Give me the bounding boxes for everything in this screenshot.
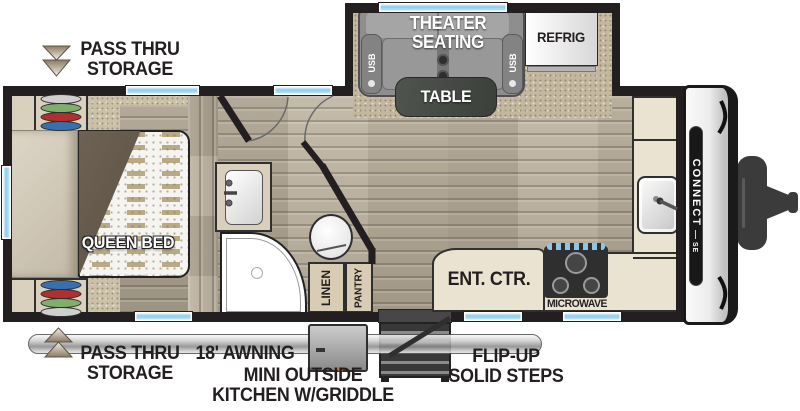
ent-ctr-label: ENT. CTR. xyxy=(448,270,531,290)
trailer-hitch xyxy=(737,156,798,250)
window-left-bedroom xyxy=(1,165,12,240)
usb-label-right: USB xyxy=(508,53,518,72)
wall-slide-left xyxy=(345,3,353,96)
window-bottom-kitchen xyxy=(562,311,622,322)
pantry-label: PANTRY xyxy=(354,268,365,308)
window-bottom-bedroom xyxy=(134,311,193,322)
refrigerator-label: REFRIG xyxy=(537,30,585,45)
window-top-bedroom xyxy=(125,85,200,96)
window-slide xyxy=(378,2,508,13)
table-label: TABLE xyxy=(421,88,472,106)
window-bottom-entry xyxy=(463,311,523,322)
floorplan: PASS THRU STORAGE PASS THRU STORAGE 18' … xyxy=(0,0,800,411)
queen-bed-label: QUEEN BED xyxy=(82,234,174,252)
awning-label: 18' AWNING xyxy=(195,344,294,364)
steps-label: FLIP-UP SOLID STEPS xyxy=(448,347,563,387)
microwave-label: MICROWAVE xyxy=(547,299,607,310)
theater-seating-label: THEATER SEATING xyxy=(410,14,487,51)
window-top-hall xyxy=(273,85,333,96)
usb-label-left: USB xyxy=(367,53,377,72)
linen-label: LINEN xyxy=(319,270,333,306)
brand-logo: CONNECTSE xyxy=(690,126,702,286)
brand-separator xyxy=(695,230,696,239)
outside-kitchen-label: MINI OUTSIDE KITCHEN W/GRIDDLE xyxy=(212,366,394,406)
pass-thru-storage-bottom-label: PASS THRU STORAGE xyxy=(80,344,179,384)
wall-slide-right xyxy=(612,3,620,96)
pass-thru-storage-top-label: PASS THRU STORAGE xyxy=(80,40,179,80)
